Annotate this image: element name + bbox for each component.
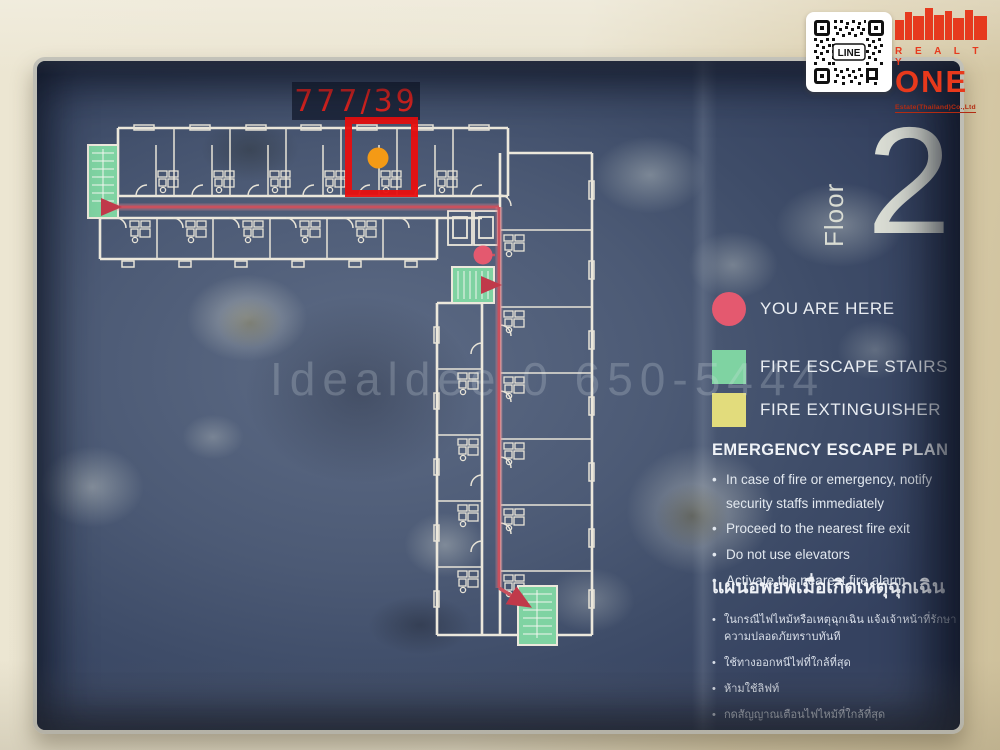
unit-highlight-box [345,117,418,197]
bullet-item: Proceed to the nearest fire exit [712,517,964,541]
legend-label: YOU ARE HERE [760,299,895,319]
fire-extinguisher-marker-icon [712,393,746,427]
top-room-dividers [134,125,489,196]
bullet-item: ห้ามใช้ลิฟท์ [712,681,964,698]
skyline-icon [893,6,989,40]
qr-pattern: LINE [812,18,886,86]
fire-stairs-south [518,586,557,645]
bottom-room-bathrooms [130,221,376,243]
legend-you-are-here: YOU ARE HERE [712,292,964,326]
floor-word: Floor [819,135,850,247]
escape-route [104,207,514,597]
bullet-item: ใช้ทางออกหนีไฟที่ใกล้ที่สุด [712,655,964,672]
legend-fire-escape-stairs: FIRE ESCAPE STAIRS [712,350,964,384]
legend-label: FIRE EXTINGUISHER [760,400,941,420]
you-are-here-marker-icon [712,292,746,326]
realty-one-logo: R E A L T Y ONE Estate(Thailand)Co.,Ltd [893,6,993,114]
thai-title: แผนอพยพเมื่อเกิดเหตุฉุกเฉิน [712,572,964,602]
escape-plan-sign-panel: 777/39 Floor 2 YOU ARE HERE FIRE ESCAPE … [33,57,964,734]
fire-stairs-marker-icon [712,350,746,384]
bullet-item: In case of fire or emergency, notify sec… [712,468,964,515]
qr-line-label: LINE [838,48,861,59]
elevators [448,211,498,245]
vertical-wing-walls [437,153,592,635]
floor-plan [70,85,615,665]
you-are-here-dot [474,246,493,265]
bullet-item: Do not use elevators [712,543,964,567]
floor-number: 2 [849,105,964,257]
legend-label: FIRE ESCAPE STAIRS [760,357,948,377]
logo-subtitle: Estate(Thailand)Co.,Ltd [895,104,976,113]
photo-of-escape-plan-sign: 777/39 Floor 2 YOU ARE HERE FIRE ESCAPE … [0,0,1000,750]
legend: YOU ARE HERE FIRE ESCAPE STAIRS FIRE EXT… [712,292,964,451]
bullet-item: ในกรณีไฟไหม้หรือเหตุฉุกเฉิน แจ้งเจ้าหน้า… [712,612,964,646]
unit-number-label: 777/39 [292,82,420,120]
emergency-escape-plan-thai: แผนอพยพเมื่อเกิดเหตุฉุกเฉิน ในกรณีไฟไหม้… [712,572,964,733]
emergency-title: EMERGENCY ESCAPE PLAN [712,441,964,460]
one-text: ONE [895,68,993,96]
line-qr-code: LINE [806,12,892,92]
legend-fire-extinguisher: FIRE EXTINGUISHER [712,393,964,427]
bullet-item: กดสัญญาณเตือนไฟไหม้ที่ใกล้ที่สุด [712,707,964,724]
